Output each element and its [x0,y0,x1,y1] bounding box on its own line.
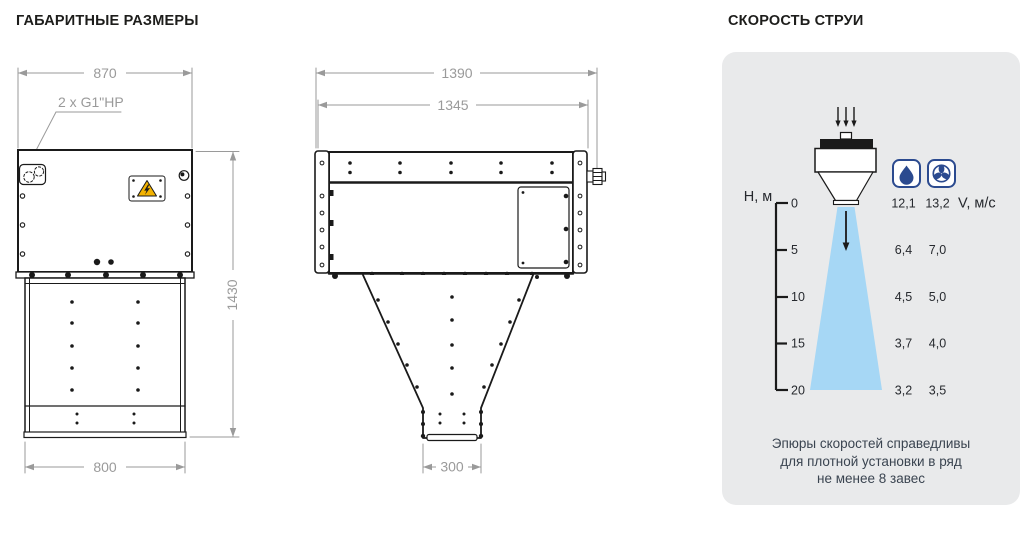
air-value-20m: 3,5 [929,384,946,398]
arrow-left-icon [316,70,325,76]
height-axis-label: H, м [744,189,773,205]
front-main-casing [16,150,194,278]
dim-1345-label: 1345 [437,97,468,113]
cable-gland-icon [179,171,189,181]
height-tick-15: 15 [791,337,805,351]
height-tick-20: 20 [791,384,805,398]
electrical-warning-plate [129,176,165,201]
velocity-unit-label: V, м/с [958,196,996,212]
water-value-15m: 3,7 [895,337,912,351]
height-tick-0: 0 [791,197,798,211]
velocity-values: 12,1 6,4 4,5 3,7 3,2 13,2 7,0 5,0 4,0 3,… [891,196,995,398]
front-lower-duct [24,278,186,438]
air-value-5m: 7,0 [929,243,946,257]
arrow-right-icon [183,70,192,76]
air-value-0m: 13,2 [925,197,949,211]
air-value-15m: 4,0 [929,337,946,351]
velocity-note-line-1: Эпюры скоростей справедливы [722,435,1020,453]
datasheet-page: ГАБАРИТНЫЕ РАЗМЕРЫ СКОРОСТЬ СТРУИ 870 2 … [0,0,1034,544]
velocity-note: Эпюры скоростей справедливы для плотной … [722,435,1020,488]
dim-870-label: 870 [93,65,117,81]
arrow-right-icon [579,102,588,108]
intake-arrows-icon [835,107,856,127]
arrow-right-icon [472,464,481,470]
arrow-left-icon [25,464,34,470]
height-tick-5: 5 [791,243,798,257]
side-funnel-duct [363,275,533,441]
access-door [518,187,569,268]
water-value-0m: 12,1 [891,197,915,211]
fan-icon [928,160,955,187]
dim-1390-label: 1390 [441,65,472,81]
velocity-note-line-2: для плотной установки в ряд [722,453,1020,471]
pipe-connection-label: 2 x G1"HP [58,94,124,110]
height-scale: H, м 0 5 10 15 20 [744,189,805,398]
arrow-left-icon [423,464,432,470]
height-tick-10: 10 [791,290,805,304]
side-view-drawing: 1390 1345 [315,64,606,475]
water-value-20m: 3,2 [895,384,912,398]
water-value-10m: 4,5 [895,290,912,304]
arrow-up-icon [230,152,236,161]
water-drop-icon [893,160,920,187]
front-view-drawing: 870 2 x G1"HP [16,64,241,475]
side-main-casing [329,152,573,279]
jet-velocity-diagram: H, м 0 5 10 15 20 [744,107,996,398]
water-value-5m: 6,4 [895,243,912,257]
air-curtain-unit-icon [815,133,876,205]
dim-300-label: 300 [440,459,464,475]
velocity-note-line-3: не менее 8 завес [722,470,1020,488]
arrow-left-icon [318,102,327,108]
arrow-left-icon [18,70,27,76]
dim-800-label: 800 [93,459,117,475]
arrow-down-icon [230,428,236,437]
pipe-stub-fitting [587,169,606,185]
dim-1430-label: 1430 [224,279,240,310]
air-value-10m: 5,0 [929,290,946,304]
arrow-right-icon [588,70,597,76]
arrow-right-icon [176,464,185,470]
